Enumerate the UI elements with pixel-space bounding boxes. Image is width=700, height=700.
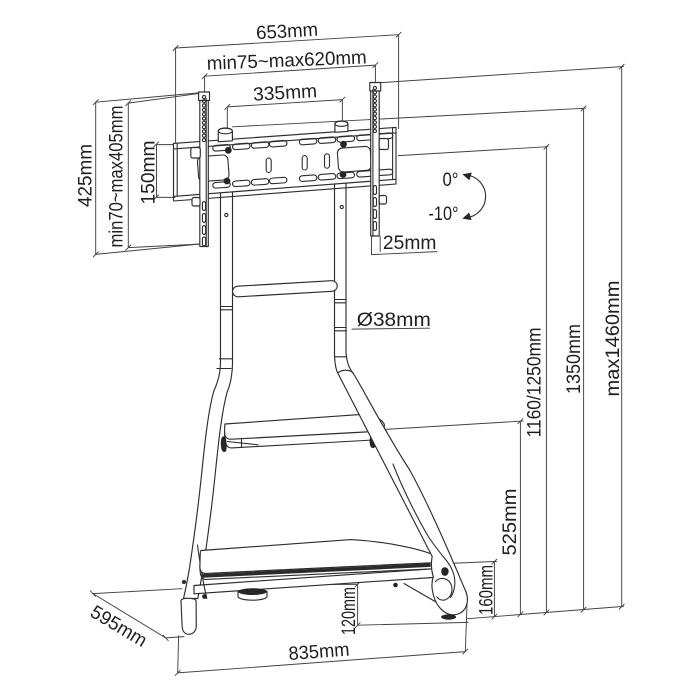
svg-text:max1460mm: max1460mm [603, 281, 624, 397]
svg-text:425mm: 425mm [76, 144, 97, 207]
svg-text:835mm: 835mm [288, 640, 350, 665]
svg-text:min70~max405mm: min70~max405mm [107, 106, 128, 248]
svg-text:525mm: 525mm [500, 489, 521, 556]
svg-text:653mm: 653mm [256, 20, 319, 45]
svg-text:Ø38mm: Ø38mm [357, 310, 431, 331]
svg-text:120mm: 120mm [339, 587, 360, 635]
svg-text:150mm: 150mm [139, 141, 160, 205]
svg-text:1350mm: 1350mm [564, 324, 585, 394]
svg-text:335mm: 335mm [253, 81, 318, 106]
svg-text:160mm: 160mm [477, 565, 498, 615]
svg-text:25mm: 25mm [383, 233, 437, 254]
svg-text:1160/1250mm: 1160/1250mm [525, 328, 546, 438]
svg-text:0°: 0° [443, 170, 459, 191]
svg-text:-10°: -10° [429, 204, 459, 225]
